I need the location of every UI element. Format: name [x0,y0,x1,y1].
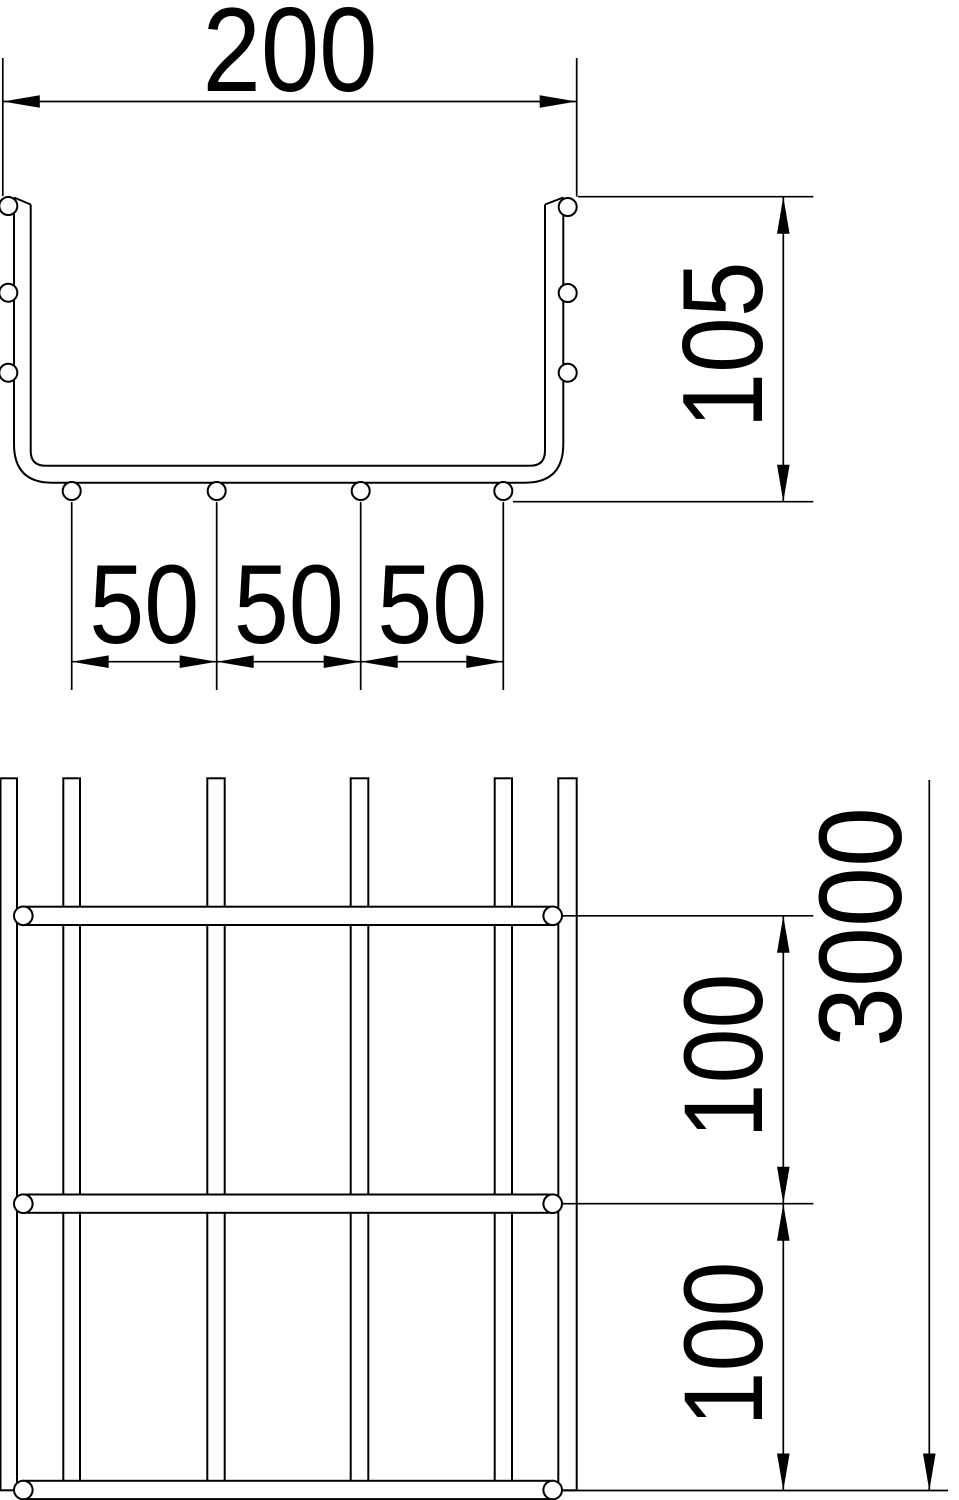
longitudinal-wire [207,778,224,1490]
dimension-height: 105 [513,197,813,502]
longitudinal-wire [495,778,512,1490]
bottom-wires [63,482,513,500]
bottom-wire-circle [494,482,512,500]
cross-rung-1 [14,907,562,926]
arrowhead-up [777,197,790,234]
dim-spacing-label-1: 50 [89,542,199,667]
tray-profile [14,198,563,483]
side-wire-circle [559,364,577,382]
longitudinal-wires [1,778,577,1490]
bottom-wire-circle [63,482,81,500]
tray-profile-outer-line [14,198,563,483]
longitudinal-wire [63,778,80,1490]
bottom-wire-circle [208,482,226,500]
dimension-length: 3000 [795,780,936,1491]
cross-rung-body [23,1195,552,1213]
side-wire-circle [0,284,17,302]
dim-pitch-label-2: 100 [661,1262,786,1427]
rung-end-cap [14,1194,33,1213]
dim-height-label: 105 [660,262,787,429]
side-wire-circle [0,364,17,382]
dim-length-label: 3000 [795,807,927,1047]
arrowhead-down [777,1167,790,1204]
bottom-wire-circle [352,482,370,500]
cable-tray-dimension-drawing: 200 105 50 50 50 [0,0,959,1500]
right-side-wires [559,198,577,382]
arrowhead-down [923,1454,936,1491]
longitudinal-wire [351,778,369,1490]
rung-end-cap [543,1194,562,1213]
cross-rung-body [23,907,552,925]
dim-spacing-label-3: 50 [377,542,487,667]
rung-end-cap [543,1481,562,1500]
arrowhead-down [777,465,790,502]
cross-rung-2 [14,1194,562,1213]
arrowhead-up [777,916,790,953]
dim-spacing-label-2: 50 [234,542,344,667]
dimension-wire-spacing: 50 50 50 [72,502,504,690]
technical-drawing-page: 200 105 50 50 50 [0,0,959,1500]
plan-view: 100 100 3000 [1,778,949,1499]
longitudinal-wire [558,778,576,1490]
cross-rung-3 [14,1481,562,1500]
arrowhead-right [540,95,577,108]
side-wire-circle [559,284,577,302]
longitudinal-wire [1,778,18,1490]
tray-profile-inner-line [31,205,545,466]
arrowhead-left [3,95,40,108]
arrowhead-up [777,1204,790,1241]
side-wire-circle [0,197,17,215]
rung-end-cap [543,907,562,926]
dimension-width: 200 [3,0,577,197]
dim-pitch-label-1: 100 [661,974,786,1139]
side-wire-circle [559,198,577,216]
rung-end-cap [14,907,33,926]
dim-width-label: 200 [203,0,378,117]
arrowhead-down [777,1454,790,1491]
cross-section-view: 200 105 50 50 50 [0,0,813,690]
cross-rung-body [23,1481,552,1499]
rung-end-cap [14,1481,33,1500]
